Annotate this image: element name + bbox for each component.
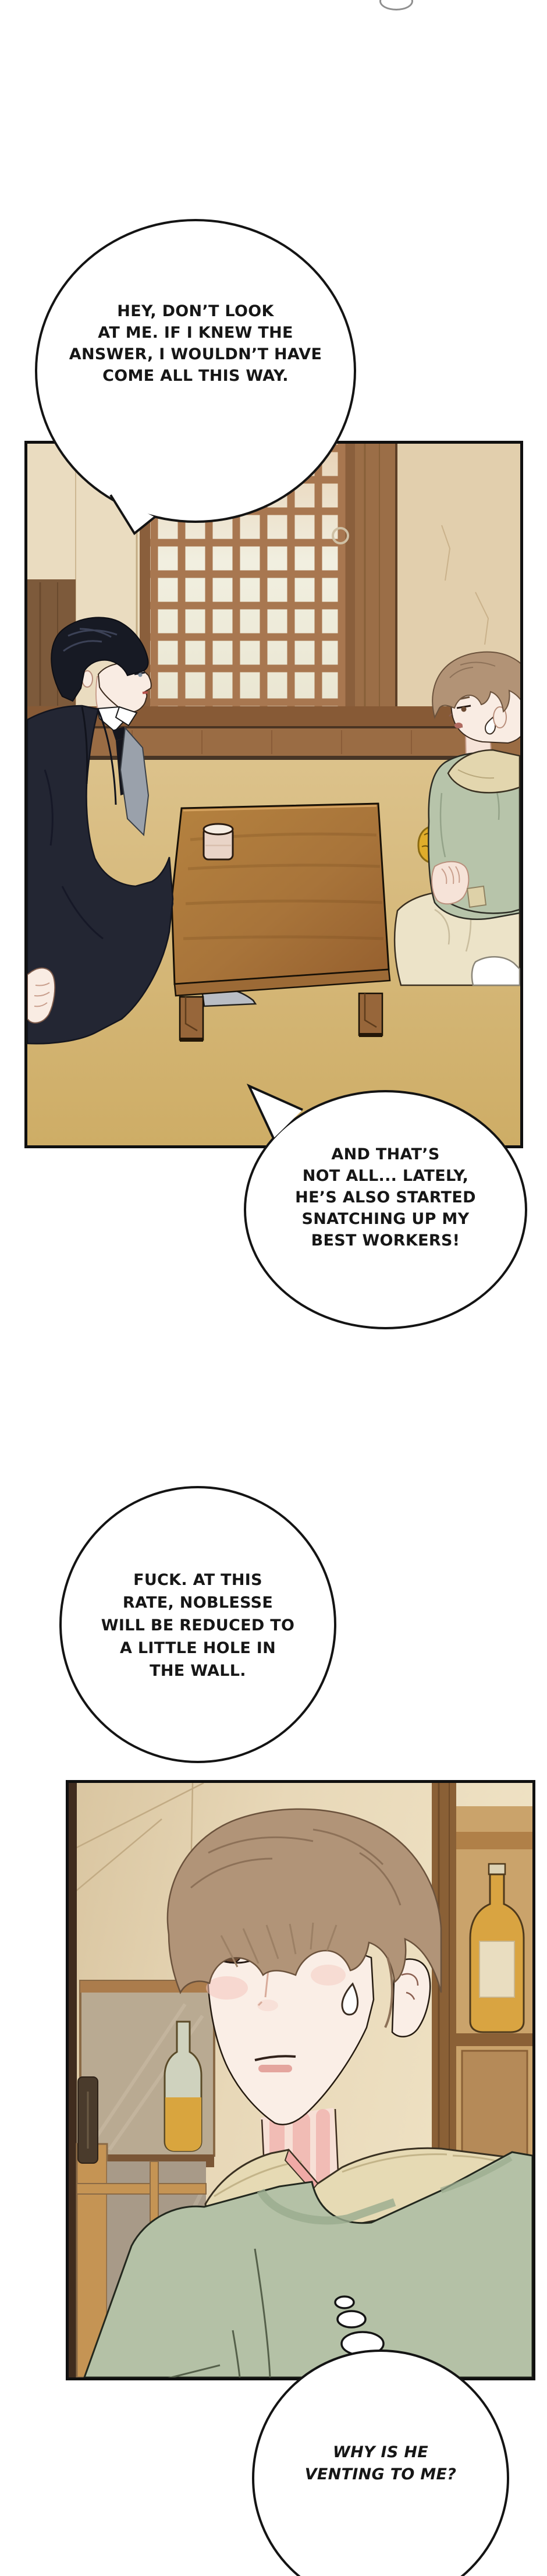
sliding-door-wood [355,444,397,728]
open-mouth [454,723,463,728]
panel-room-scene [24,441,523,1148]
speech-bubble-2-text: AND THAT’S NOT ALL... LATELY, HE’S ALSO … [244,1144,527,1251]
speech-bubble-1-tail [99,489,169,542]
comic-page: HEY, DON’T LOOK AT ME. IF I KNEW THE ANS… [0,0,547,2576]
sleeve-cuff [467,886,486,907]
speech-bubble-1-text: HEY, DON’T LOOK AT ME. IF I KNEW THE ANS… [35,300,356,387]
table-leg [359,993,382,1035]
speech-bubble-3-text: FUCK. AT THIS RATE, NOBLESSE WILL BE RED… [59,1569,336,1682]
panel-closeup-scene [66,1780,535,2380]
eye [138,673,143,677]
lips [143,692,148,693]
panel-room-art [27,444,520,1145]
thought-bubble-4-text: WHY IS HE VENTING TO ME? [252,2441,509,2486]
eye [461,707,467,712]
previous-bubble-remnant [379,0,413,10]
table-leg [180,997,203,1040]
tea-cup [204,824,233,859]
panel-closeup-art [69,1783,532,2377]
lower-lip [258,2065,292,2072]
speech-bubble-2-tail [241,1080,317,1144]
